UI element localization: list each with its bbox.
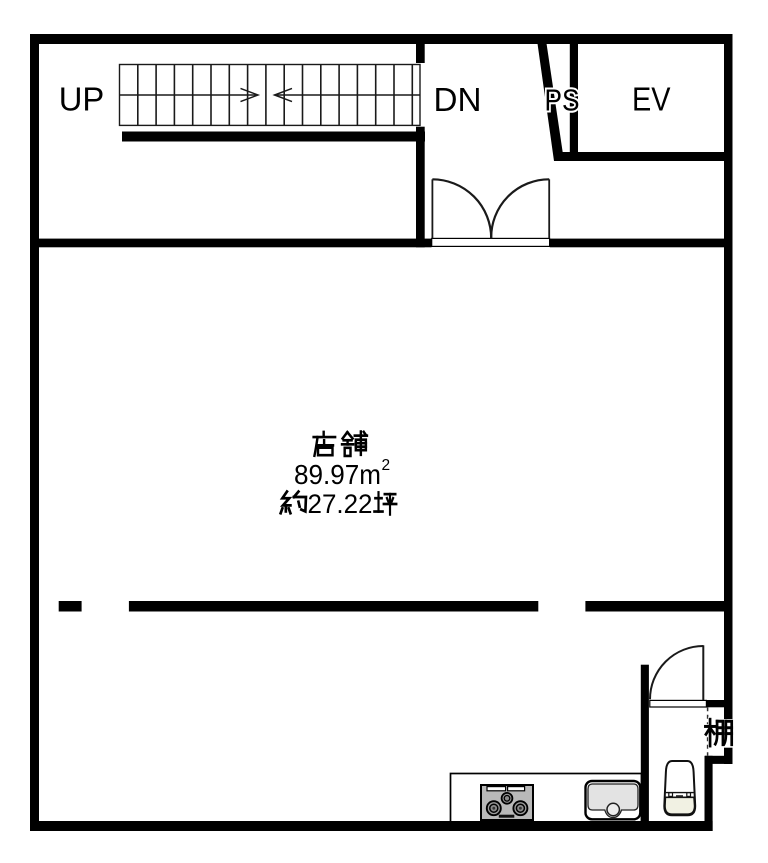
svg-text:2: 2 xyxy=(382,457,391,474)
svg-text:PS: PS xyxy=(545,83,580,118)
svg-text:DN: DN xyxy=(434,81,482,118)
svg-text:89.97m: 89.97m xyxy=(294,459,381,490)
svg-text:EV: EV xyxy=(632,81,671,118)
svg-text:27.22: 27.22 xyxy=(308,489,373,519)
svg-text:UP: UP xyxy=(59,81,104,118)
